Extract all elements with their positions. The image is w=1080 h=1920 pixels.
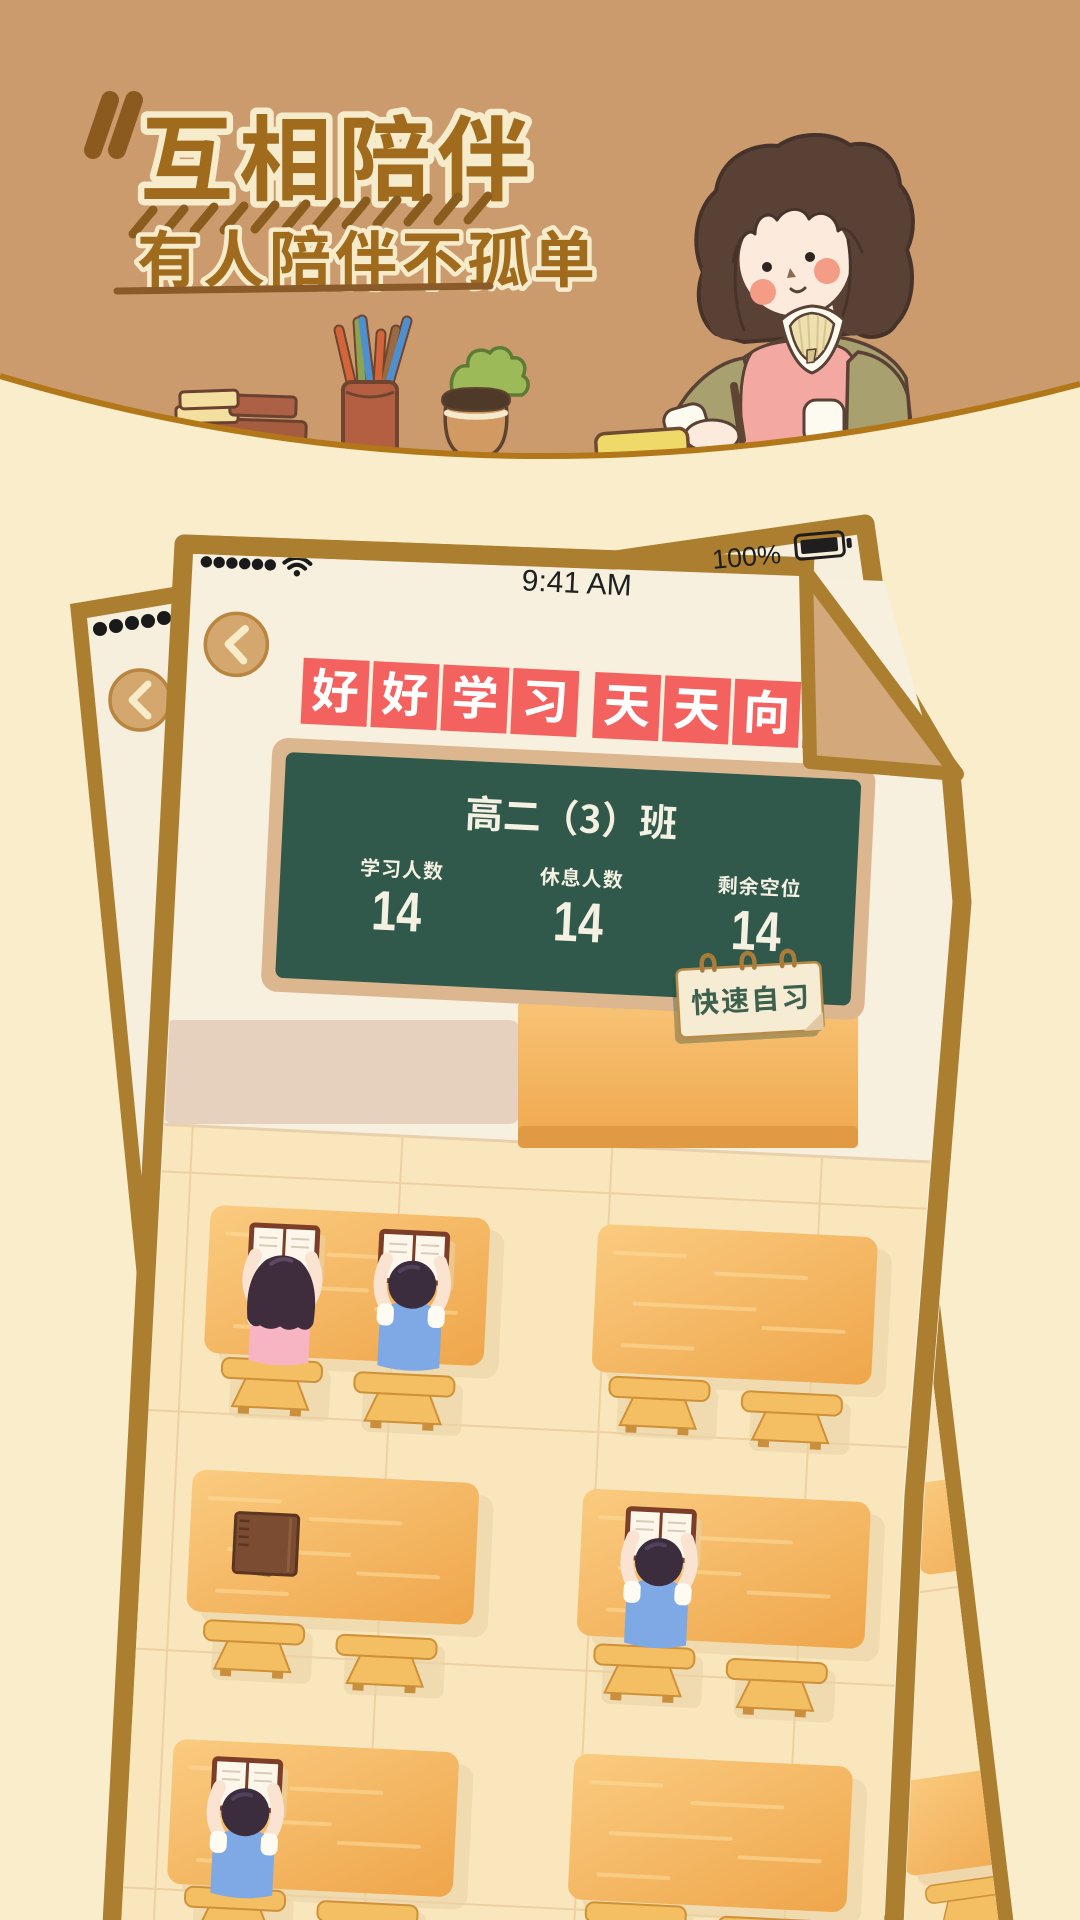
svg-text:100%: 100%: [711, 539, 782, 575]
svg-text:14: 14: [729, 898, 782, 963]
svg-text:14: 14: [370, 878, 423, 943]
svg-text:14: 14: [552, 889, 605, 954]
